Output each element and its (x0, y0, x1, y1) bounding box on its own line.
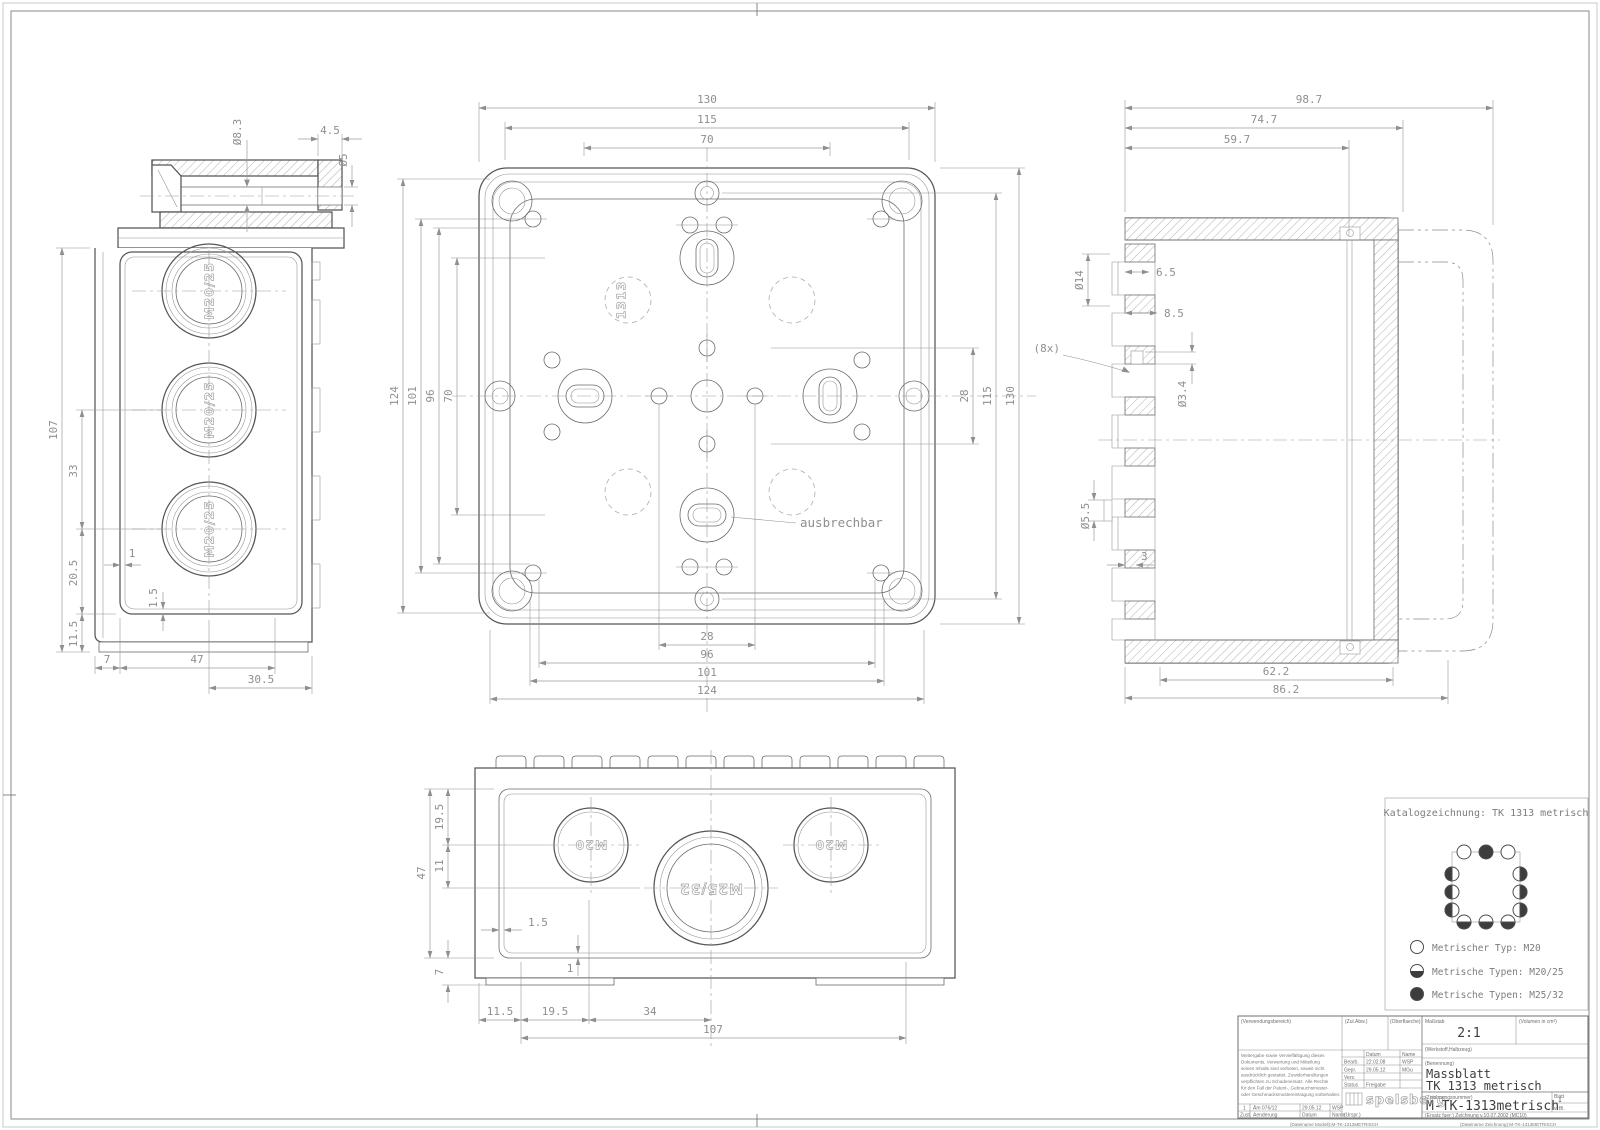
knockout-label: M20 (815, 838, 848, 853)
dim-862: 86.2 (1273, 683, 1300, 696)
scale-value: 2:1 (1457, 1026, 1480, 1041)
count-8x: (8x) (1034, 342, 1061, 355)
field-v-bl: v. Bl. (1554, 1106, 1565, 1112)
field-werkstoff: (Werkstoff,Halbzeug) (1425, 1047, 1472, 1053)
col-aenderung: Aenderung (1253, 1113, 1278, 1119)
dim-96-bottom: 96 (700, 648, 713, 661)
dim-33: 33 (67, 464, 80, 477)
dim-47: 47 (415, 866, 428, 879)
dim-107: 107 (703, 1023, 723, 1036)
dim-28-bottom: 28 (700, 630, 713, 643)
dim-dia34: Ø3.4 (1176, 380, 1189, 407)
file-drawing: (Dateiname Zeichnung):M-TK-1313METRISCH (1460, 1122, 1556, 1127)
col-datum: Datum (1366, 1052, 1381, 1058)
dim-dia14: Ø14 (1073, 270, 1086, 290)
dim-130: 130 (697, 93, 717, 106)
dim-124-bottom: 124 (697, 684, 717, 697)
col-name: Name (1402, 1052, 1416, 1058)
legend-item-m2532: Metrische Typen: M25/32 (1432, 990, 1564, 1001)
row-vers-label: Vers. (1344, 1075, 1355, 1081)
dim-195-left: 19.5 (433, 804, 446, 831)
dim-115: 11.5 (67, 621, 80, 648)
dim-dia55: Ø5.5 (1079, 503, 1092, 530)
dim-70: 70 (700, 133, 713, 146)
dim-pin-dia: Ø5 (337, 153, 350, 166)
title-block: (Verwendungsbereich) (Zul.Abw.) (Oberfla… (1238, 1016, 1588, 1127)
dim-1: 1 (567, 962, 574, 975)
field-ersatz: (Ersatz fuer:) Zeichnung v.10.07.2002 (M… (1425, 1113, 1527, 1119)
logo-text: spelsberg (1366, 1093, 1447, 1108)
col-datum2: Datum (1302, 1113, 1317, 1119)
dim-96-left: 96 (424, 389, 437, 402)
view-plan: 1313 ausbrechbar 130 115 70 124 101 96 7… (388, 93, 1036, 712)
field-zul-abw: (Zul.Abw.) (1345, 1019, 1368, 1025)
dim-height-107: 107 (47, 420, 60, 440)
svg-text:Weitergabe sowie Vervielfältig: Weitergabe sowie Vervielfältigung dieses (1241, 1053, 1325, 1058)
dim-101-bottom: 101 (697, 666, 717, 679)
svg-text:Dokuments, Verwertung und Mitt: Dokuments, Verwertung und Mitteilung (1241, 1060, 1320, 1065)
row-status-label: Status (1344, 1083, 1359, 1089)
row-bearb-label: Bearb. (1344, 1060, 1359, 1066)
field-verwendungsbereich: (Verwendungsbereich) (1241, 1019, 1291, 1025)
cad-drawing: M20/25 M20/25 M20/25 Ø8.3 4.5 Ø5 107 33 … (0, 0, 1600, 1130)
svg-text:für den Fall der Patent-, Gebr: für den Fall der Patent-, Gebrauchsmuste… (1241, 1086, 1329, 1091)
field-volumen: (Volumen in cm³) (1519, 1019, 1557, 1025)
row-gepr-datum: 29.05.12 (1366, 1068, 1386, 1074)
dim-115: 115 (697, 113, 717, 126)
row-bearb-name: WSP (1402, 1060, 1414, 1066)
knockout-label: M20 (575, 838, 608, 853)
dim-1: 1 (129, 547, 136, 560)
rev-zust: 1 (1243, 1106, 1246, 1112)
dim-747: 74.7 (1251, 113, 1278, 126)
dim-124-left: 124 (388, 386, 401, 406)
dim-305: 30.5 (248, 673, 275, 686)
dim-597: 59.7 (1224, 133, 1251, 146)
rev-text: Äm 076/12 (1253, 1105, 1277, 1112)
dim-115-bottom: 11.5 (487, 1005, 514, 1018)
dim-11: 11 (433, 859, 446, 872)
svg-text:seines Inhalts sind verboten,: seines Inhalts sind verboten, soweit nic… (1241, 1066, 1325, 1071)
drawing-sheet: M20/25 M20/25 M20/25 Ø8.3 4.5 Ø5 107 33 … (0, 0, 1600, 1130)
spelsberg-logo: spelsberg (1346, 1093, 1447, 1108)
view-front: M20 M20 M25/32 19.5 11 47 7 1.5 1 11.5 1… (415, 750, 955, 1046)
rev-name: WSP (1332, 1106, 1344, 1112)
dim-987: 98.7 (1296, 93, 1323, 106)
rev-datum: 29.05.12 (1302, 1106, 1322, 1112)
svg-text:oder Geschmacksmustereintragun: oder Geschmacksmustereintragung vorbehal… (1241, 1092, 1340, 1097)
row-bearb-datum: 22.02.08 (1366, 1060, 1386, 1066)
dim-28-right: 28 (958, 389, 971, 402)
col-zust: Zust. (1240, 1113, 1251, 1119)
latch-tabs (496, 756, 944, 768)
dim-195-bottom: 19.5 (542, 1005, 569, 1018)
catalog-box: Katalogzeichnung: TK 1313 metrisch Metri… (1384, 798, 1589, 1010)
dim-15: 1.5 (147, 588, 160, 608)
svg-text:ausdrücklich gestattet. Zuwide: ausdrücklich gestattet. Zuwiderhandlunge… (1241, 1073, 1329, 1078)
dim-47: 47 (190, 653, 203, 666)
catalog-title: Katalogzeichnung: TK 1313 metrisch (1384, 808, 1589, 819)
view-side: M20/25 M20/25 M20/25 Ø8.3 4.5 Ø5 107 33 … (47, 119, 362, 694)
dim-205: 20.5 (67, 560, 80, 587)
dim-101-left: 101 (406, 386, 419, 406)
dim-7: 7 (104, 653, 111, 666)
catalog-legend: Metrischer Typ: M20 Metrische Typen: M20… (1411, 941, 1564, 1002)
legend-item-m20: Metrischer Typ: M20 (1432, 943, 1541, 954)
dim-7: 7 (433, 969, 446, 976)
keyhole-slots (558, 231, 857, 542)
dim-34: 34 (643, 1005, 657, 1018)
svg-text:verpflichten zu Schadenersatz.: verpflichten zu Schadenersatz. Alle Rech… (1241, 1079, 1329, 1084)
dim-3: 3 (1141, 550, 1148, 563)
sheet-number: 1 (1558, 1097, 1562, 1104)
disclaimer-text: Weitergabe sowie Vervielfältigung dieses… (1241, 1053, 1340, 1097)
legend-item-m2025: Metrische Typen: M20/25 (1432, 967, 1564, 978)
dim-hinge-offset: 4.5 (320, 124, 340, 137)
dim-65: 6.5 (1156, 266, 1176, 279)
row-gepr-name: MGu (1402, 1068, 1413, 1074)
col-urspr: (Urspr.) (1344, 1113, 1361, 1119)
field-massstab-label: Maßstab (1425, 1019, 1445, 1025)
dim-115-right: 115 (981, 386, 994, 406)
field-oberflaeche: (Oberflaeche) (1390, 1019, 1421, 1025)
dim-622: 62.2 (1263, 665, 1290, 678)
row-status-value: Freigabe (1366, 1083, 1386, 1089)
row-gepr-label: Gepr. (1344, 1068, 1356, 1074)
title-line-2: TK 1313 metrisch (1426, 1079, 1542, 1093)
dim-85: 8.5 (1164, 307, 1184, 320)
dim-130-right: 130 (1004, 386, 1017, 406)
note-ausbrechbar: ausbrechbar (800, 515, 883, 530)
dim-70-left: 70 (442, 389, 455, 402)
dim-15: 1.5 (528, 916, 548, 929)
dim-hinge-bore: Ø8.3 (231, 119, 244, 146)
file-model: (Dateiname Modell):M-TK-1313METRISCH (1290, 1122, 1378, 1127)
catalog-symbol-grid (1445, 845, 1527, 929)
emboss-marking: 1313 (614, 281, 629, 320)
phantom-cover (1398, 230, 1493, 651)
view-section: 98.7 74.7 59.7 Ø14 6.5 8.5 (8x) Ø3.4 Ø5.… (1034, 93, 1501, 704)
